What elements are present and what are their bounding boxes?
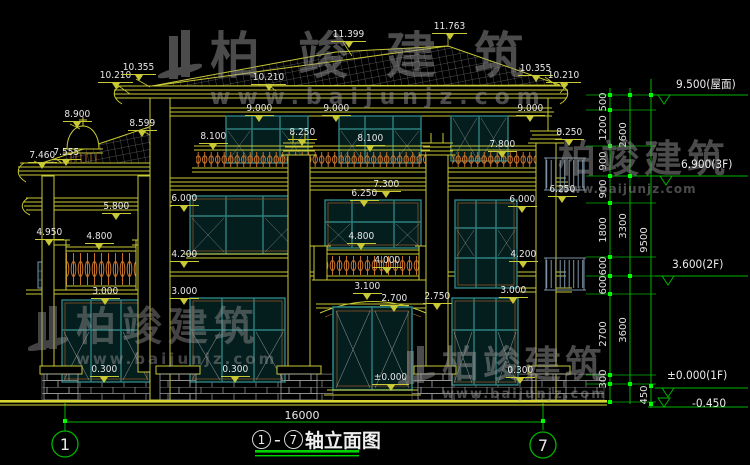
dimension-segment-value: 3300 (618, 213, 629, 238)
dimension-segment-value: 600 (598, 256, 609, 275)
ground-line (0, 400, 607, 406)
wing-roof-and-turret (18, 117, 170, 182)
level-marker-label: 6.900(3F) (681, 157, 732, 171)
dimension-segment-value: 2700 (598, 321, 609, 346)
dimension-segment-value: 500 (598, 92, 609, 111)
level-marker-label: ±0.000(1F) (667, 368, 727, 382)
dimension-segment-value: 2600 (618, 122, 629, 147)
dimension-segment-value: 1200 (598, 115, 609, 140)
dimension-segment-value: 900 (598, 151, 609, 170)
axis-bubble-right-number: 7 (538, 436, 548, 455)
level-marker-label: 3.600(2F) (672, 257, 723, 271)
dimension-segment-value: 600 (598, 275, 609, 294)
dimension-segment-value: 450 (639, 385, 650, 404)
level-marker-label: 9.500(屋面) (676, 76, 736, 92)
third-floor-balustrade (192, 146, 540, 172)
title-dash: - (274, 429, 281, 451)
main-roof (114, 36, 568, 104)
elevation-drawing-sheet: 1 7 500120090090018006006002700300260033… (0, 0, 750, 465)
axis-bubble-left-number: 1 (60, 435, 70, 454)
center-balcony-balustrade (310, 246, 440, 280)
dimension-segment-value: 1800 (598, 217, 609, 242)
title-axis-from-bubble: 1 (252, 430, 271, 449)
drawing-title: 1 - 7 轴立面图 (252, 426, 381, 453)
title-axis-to-bubble: 7 (284, 430, 303, 449)
dimension-segment-value: 9500 (639, 227, 650, 252)
cad-linework: 1 7 500120090090018006006002700300260033… (0, 0, 750, 465)
level-marker-label: -0.450 (692, 396, 726, 410)
dimension-chain-texts: 5001200900900180060060027003002600330036… (598, 92, 650, 404)
overall-width-dimension: 16000 (266, 409, 338, 422)
dimension-segment-value: 300 (598, 369, 609, 388)
dimension-segment-value: 3600 (618, 317, 629, 342)
title-text: 轴立面图 (305, 426, 381, 453)
dimension-segment-value: 900 (598, 179, 609, 198)
